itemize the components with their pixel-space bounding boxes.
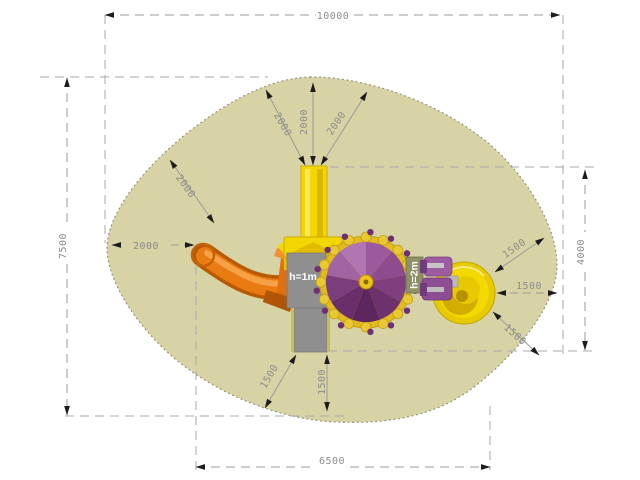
dim-overall-width: 10000 (317, 11, 350, 22)
dim-footprint-height: 4000 (576, 239, 587, 265)
platform-height-label: h=1m (289, 271, 317, 283)
tower-height-label: h=2m (408, 261, 420, 289)
playground-plan-drawing: h=1m (0, 0, 640, 480)
dim-clearance-platform-down: 1500 (317, 369, 328, 395)
dim-overall-height: 7500 (58, 233, 69, 259)
dim-clearance-tower-up: 2000 (299, 109, 310, 135)
dim-footprint-width: 6500 (319, 456, 345, 467)
dim-clearance-dish-right: 1500 (516, 281, 542, 292)
dim-clearance-slide-left: 2000 (133, 241, 159, 252)
spring-rider (420, 257, 458, 300)
plan-canvas: h=1m (0, 0, 640, 480)
